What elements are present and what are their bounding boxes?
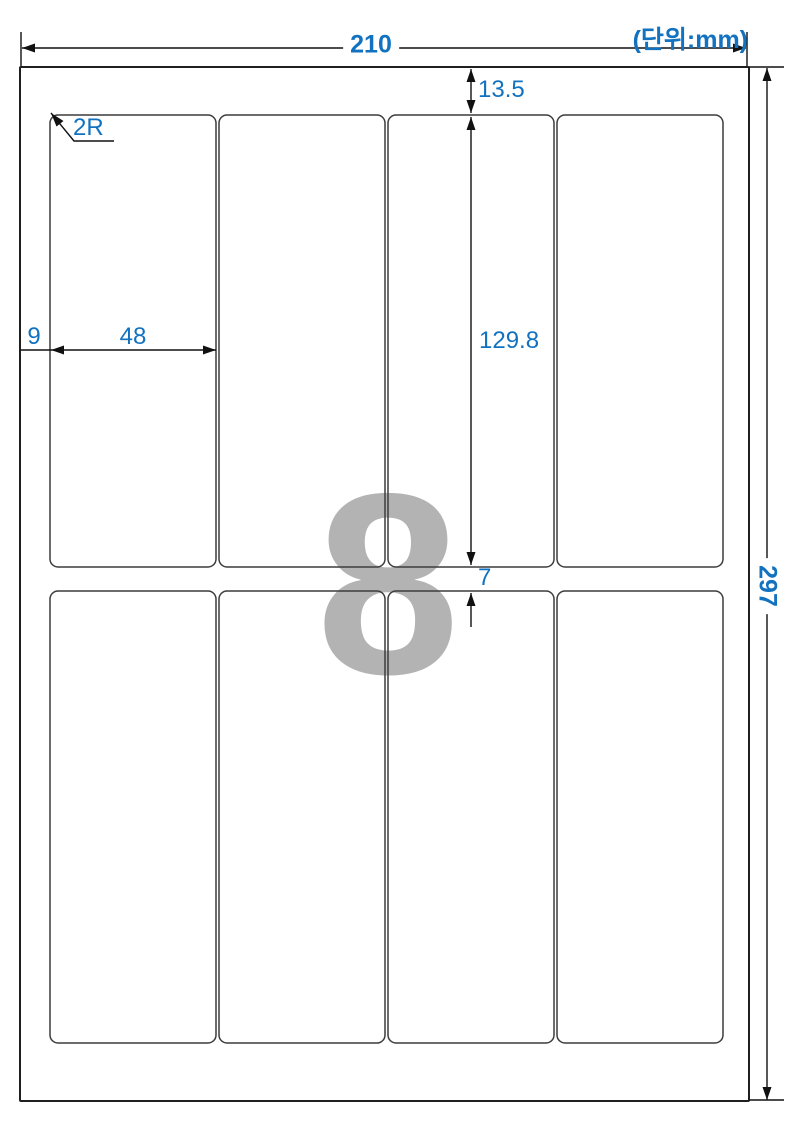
unit-note: (단위:mm) [633, 20, 748, 56]
label-cell-r2c1 [50, 591, 216, 1043]
row-gap-value: 7 [478, 564, 491, 592]
sheet-height-value: 297 [753, 558, 782, 614]
label-height-value: 129.8 [479, 327, 539, 355]
sheet-width-value: 210 [343, 31, 399, 60]
label-cell-r2c2 [219, 591, 385, 1043]
top-margin-value: 13.5 [478, 76, 525, 104]
row-gap-dimension-line [467, 593, 476, 627]
dimension-drawing [0, 0, 800, 1130]
label-height-dimension-line [467, 117, 476, 565]
label-grid [50, 115, 723, 1043]
label-width-value: 48 [120, 323, 147, 351]
top-margin-dimension-line [467, 69, 476, 113]
label-cell-r2c3 [388, 591, 554, 1043]
label-sheet-diagram: 8 [0, 0, 800, 1130]
label-cell-r1c4 [557, 115, 723, 567]
label-cell-r1c2 [219, 115, 385, 567]
left-margin-value: 9 [27, 323, 40, 351]
label-cell-r2c4 [557, 591, 723, 1043]
corner-radius-value: 2R [73, 114, 104, 142]
